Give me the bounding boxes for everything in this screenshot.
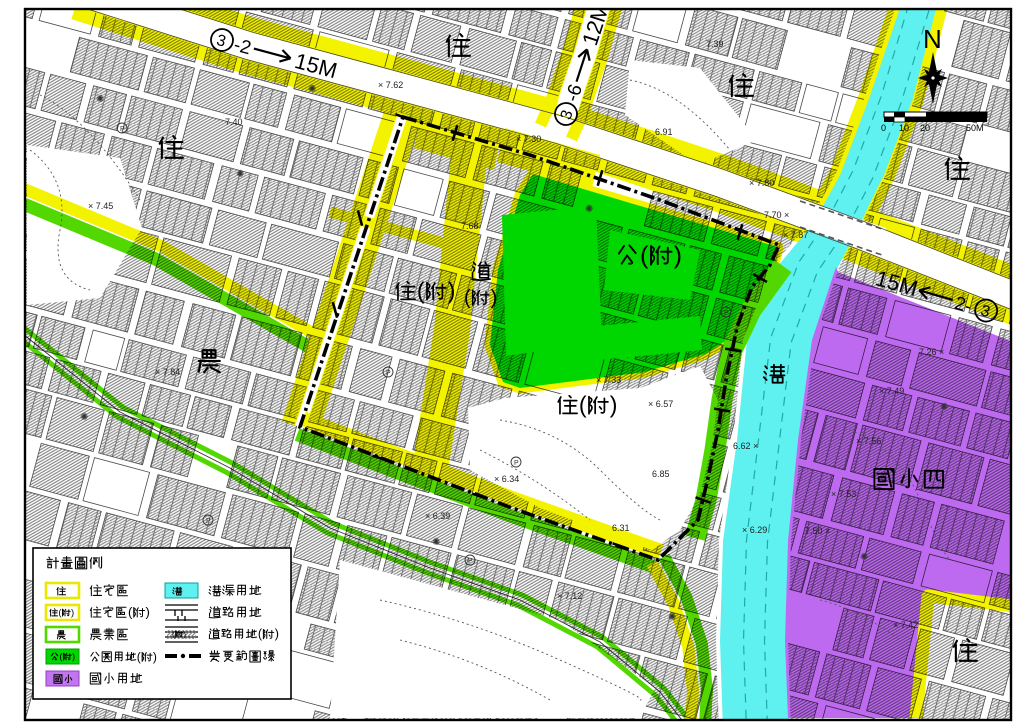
svg-text:✺: ✺ [96, 94, 104, 105]
svg-text:): ) [153, 650, 157, 664]
svg-text:6.91: 6.91 [655, 127, 673, 137]
svg-text:× 7.56: × 7.56 [856, 436, 881, 446]
svg-text:× 7.87: × 7.87 [783, 230, 808, 240]
svg-text:(: ( [640, 241, 649, 269]
svg-text:✺: ✺ [80, 412, 88, 423]
svg-text:✺: ✺ [860, 552, 868, 563]
svg-text:× 6.34: × 6.34 [494, 474, 519, 484]
svg-text:(: ( [417, 278, 425, 304]
svg-text:P: P [514, 460, 519, 467]
svg-text:6.62 ×: 6.62 × [733, 441, 758, 451]
svg-text:6.31: 6.31 [612, 523, 630, 533]
svg-text:P: P [386, 370, 391, 377]
svg-text:× 7.80: × 7.80 [749, 178, 774, 188]
svg-text:6.85: 6.85 [652, 469, 670, 479]
svg-text:): ) [674, 241, 682, 269]
svg-text:× 7.45: × 7.45 [88, 201, 113, 211]
svg-text:P: P [468, 558, 473, 565]
svg-text:(: ( [464, 287, 471, 309]
svg-text:10: 10 [899, 123, 909, 133]
svg-text:× 7.30: × 7.30 [516, 134, 541, 144]
svg-text:× 7.53: × 7.53 [831, 489, 856, 499]
svg-text:P: P [724, 310, 729, 317]
svg-text:): ) [71, 608, 74, 619]
svg-text:P: P [206, 518, 211, 525]
svg-text:(: ( [137, 650, 141, 664]
svg-text:× 7.49: × 7.49 [879, 386, 904, 396]
svg-text:× 6.57: × 6.57 [648, 399, 673, 409]
svg-text:7.70 ×: 7.70 × [764, 210, 789, 220]
svg-text:(: ( [579, 392, 587, 418]
svg-text:× 7.12: × 7.12 [557, 591, 582, 601]
svg-text:× 7.62: × 7.62 [378, 80, 403, 90]
svg-text:× 6.29: × 6.29 [742, 525, 767, 535]
svg-text:7.40: 7.40 [225, 117, 243, 127]
svg-text:7.68: 7.68 [461, 221, 479, 231]
svg-text:50M: 50M [966, 123, 984, 133]
svg-text:): ) [275, 627, 279, 641]
svg-text:✺: ✺ [236, 169, 244, 180]
svg-text:× 7.84: × 7.84 [155, 367, 180, 377]
svg-text:): ) [72, 652, 75, 663]
svg-text:): ) [610, 392, 618, 418]
svg-text:✺: ✺ [940, 402, 948, 413]
svg-text:): ) [183, 629, 186, 639]
svg-text:): ) [448, 278, 456, 304]
svg-text:0: 0 [881, 123, 886, 133]
svg-text:7.50 ×: 7.50 × [805, 526, 830, 536]
svg-text:× 6.39: × 6.39 [425, 511, 450, 521]
svg-text:(: ( [172, 629, 175, 639]
svg-text:7.26 ×: 7.26 × [919, 347, 944, 357]
svg-text:7.39: 7.39 [706, 39, 724, 49]
svg-text:✺: ✺ [585, 204, 593, 215]
svg-text:× 7.33: × 7.33 [596, 375, 621, 385]
svg-text:): ) [491, 287, 498, 309]
svg-text:✺: ✺ [432, 537, 440, 548]
svg-text:20: 20 [920, 123, 930, 133]
svg-text:): ) [146, 605, 150, 620]
svg-text:N: N [923, 24, 942, 54]
svg-text:✺: ✺ [308, 84, 316, 95]
svg-text:× 7.42: × 7.42 [893, 620, 918, 630]
svg-text:(: ( [128, 605, 133, 620]
svg-text:✺: ✺ [668, 612, 676, 623]
svg-text:P: P [120, 126, 125, 133]
